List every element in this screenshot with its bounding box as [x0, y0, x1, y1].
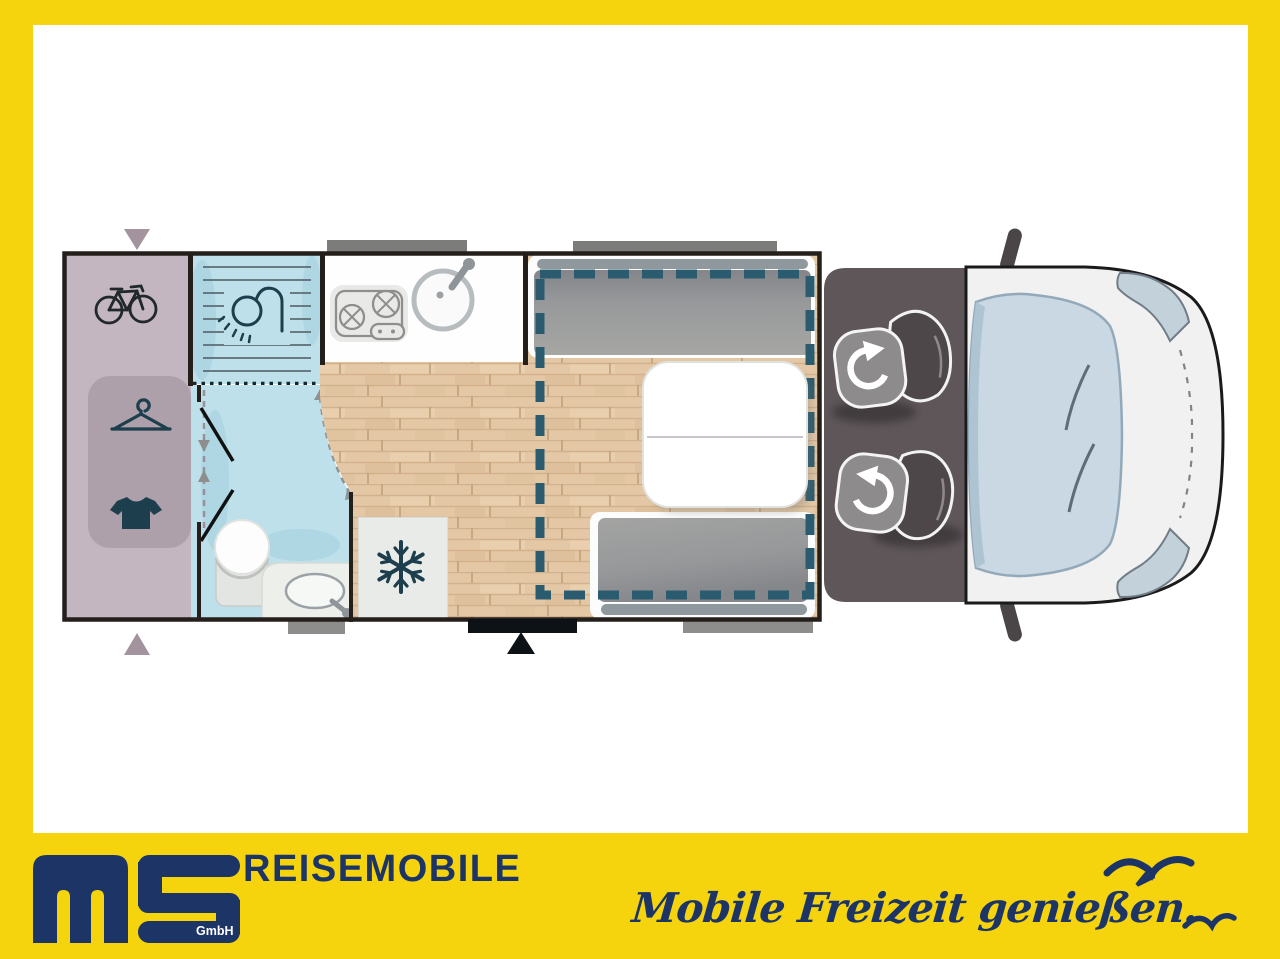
windshield	[969, 294, 1122, 576]
entry-arrow-icon	[507, 632, 535, 654]
bench-seat	[528, 255, 815, 358]
dinette-table	[643, 362, 807, 507]
marker-arrow-icon	[124, 229, 150, 250]
bench-seat	[590, 512, 815, 619]
marker-arrow-icon	[124, 633, 150, 655]
seagull-icon	[1107, 860, 1191, 886]
washbasin-icon	[262, 563, 352, 619]
toilet-icon	[215, 520, 269, 606]
window	[288, 620, 345, 634]
floorplan-graphic	[0, 0, 1280, 959]
window	[573, 241, 777, 252]
brand-wordmark: REISEMOBILE	[243, 850, 521, 888]
vehicle-front	[966, 227, 1223, 643]
window	[683, 620, 813, 633]
fridge-zone	[358, 517, 448, 619]
cab-zone	[824, 268, 966, 602]
kitchen-zone	[324, 255, 523, 363]
logo-gmbh-label: GmbH	[196, 925, 234, 938]
window	[327, 240, 467, 253]
yellow-frame: ms GmbH REISEMOBILE Mobile Freizeit geni…	[0, 0, 1280, 959]
logo-letter-m	[33, 855, 128, 943]
entry-door	[468, 619, 577, 633]
brand-slogan: Mobile Freizeit genießen.	[630, 886, 1199, 931]
stove-icon	[330, 285, 408, 342]
shower-zone	[188, 255, 322, 384]
